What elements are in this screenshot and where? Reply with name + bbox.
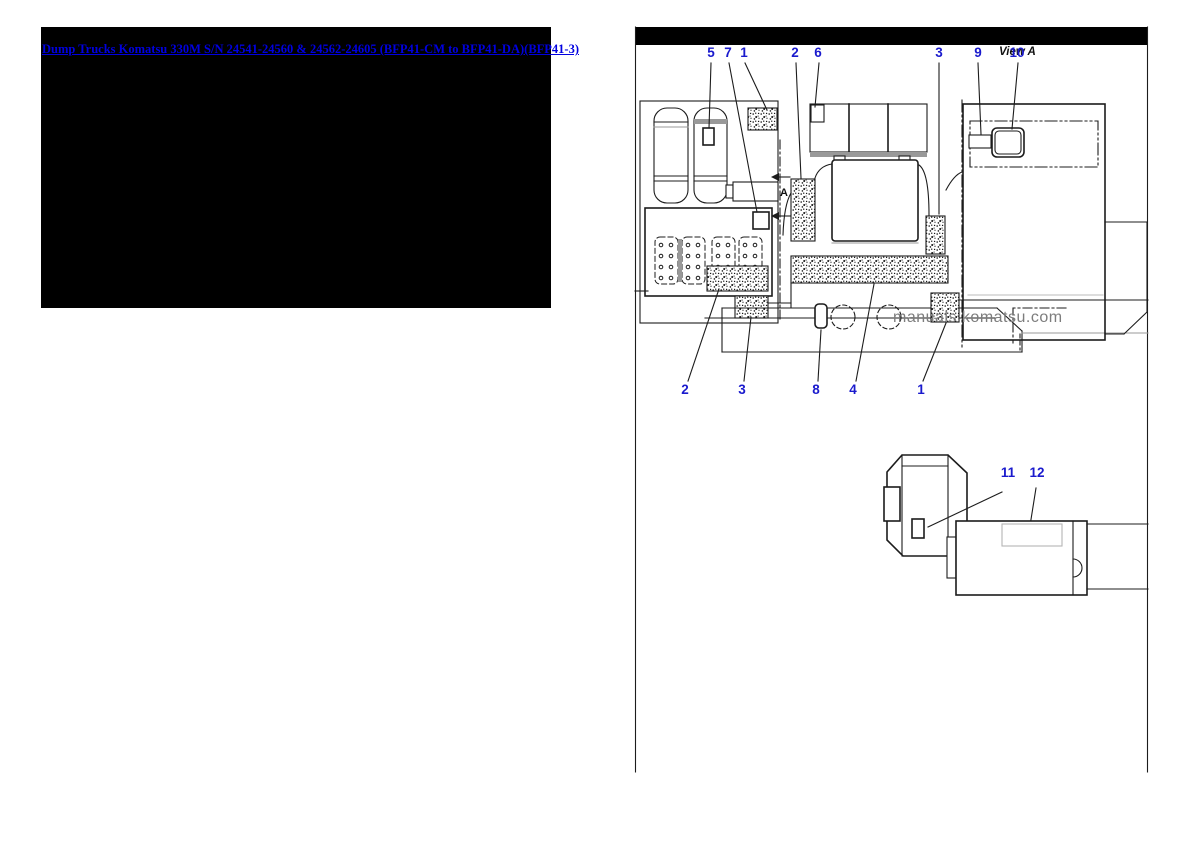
section-arrow-label: A bbox=[780, 187, 788, 199]
part-6-target bbox=[811, 105, 824, 122]
insulation-pad-2a bbox=[707, 266, 768, 291]
insulation-pad-3a bbox=[735, 296, 768, 318]
watermark: manuals.komatsu.com bbox=[893, 309, 1063, 327]
part-5-target bbox=[703, 128, 714, 145]
callout-1-bottom: 1 bbox=[917, 383, 925, 397]
part-11-target bbox=[912, 519, 924, 538]
hose-opening-left bbox=[831, 305, 855, 329]
parts-diagram bbox=[0, 0, 1190, 842]
section-line-a bbox=[771, 140, 790, 320]
callout-3-top: 3 bbox=[935, 46, 943, 60]
callout-4: 4 bbox=[849, 383, 857, 397]
callout-3-bottom: 3 bbox=[738, 383, 746, 397]
insulation-pad-1a bbox=[748, 108, 777, 130]
callout-11: 11 bbox=[1001, 466, 1015, 480]
insulation-pad-2b bbox=[791, 179, 815, 241]
callout-2-top: 2 bbox=[791, 46, 799, 60]
duct-body bbox=[956, 521, 1087, 595]
manual-page: Dump Trucks Komatsu 330M S/N 24541-24560… bbox=[0, 0, 1190, 842]
battery-box bbox=[645, 208, 772, 296]
part-8-target bbox=[815, 304, 827, 328]
engine-group bbox=[783, 104, 962, 307]
callout-5: 5 bbox=[707, 46, 715, 60]
callout-1-top: 1 bbox=[740, 46, 748, 60]
radiator bbox=[810, 104, 927, 152]
engine-block bbox=[832, 160, 918, 241]
callout-12: 12 bbox=[1029, 466, 1044, 480]
callout-6: 6 bbox=[814, 46, 822, 60]
part-7-target bbox=[753, 212, 769, 229]
part-10-target bbox=[992, 128, 1024, 157]
callout-10: 10 bbox=[1009, 46, 1024, 60]
top-black-bar bbox=[635, 27, 1148, 45]
insulation-pad-3b bbox=[926, 216, 945, 254]
callout-9: 9 bbox=[974, 46, 982, 60]
insulation-pad-4 bbox=[791, 256, 948, 283]
view-a-detail bbox=[884, 455, 1148, 595]
callout-2-bottom: 2 bbox=[681, 383, 689, 397]
part-9-target bbox=[969, 135, 991, 148]
callout-8: 8 bbox=[812, 383, 820, 397]
callout-7: 7 bbox=[724, 46, 732, 60]
